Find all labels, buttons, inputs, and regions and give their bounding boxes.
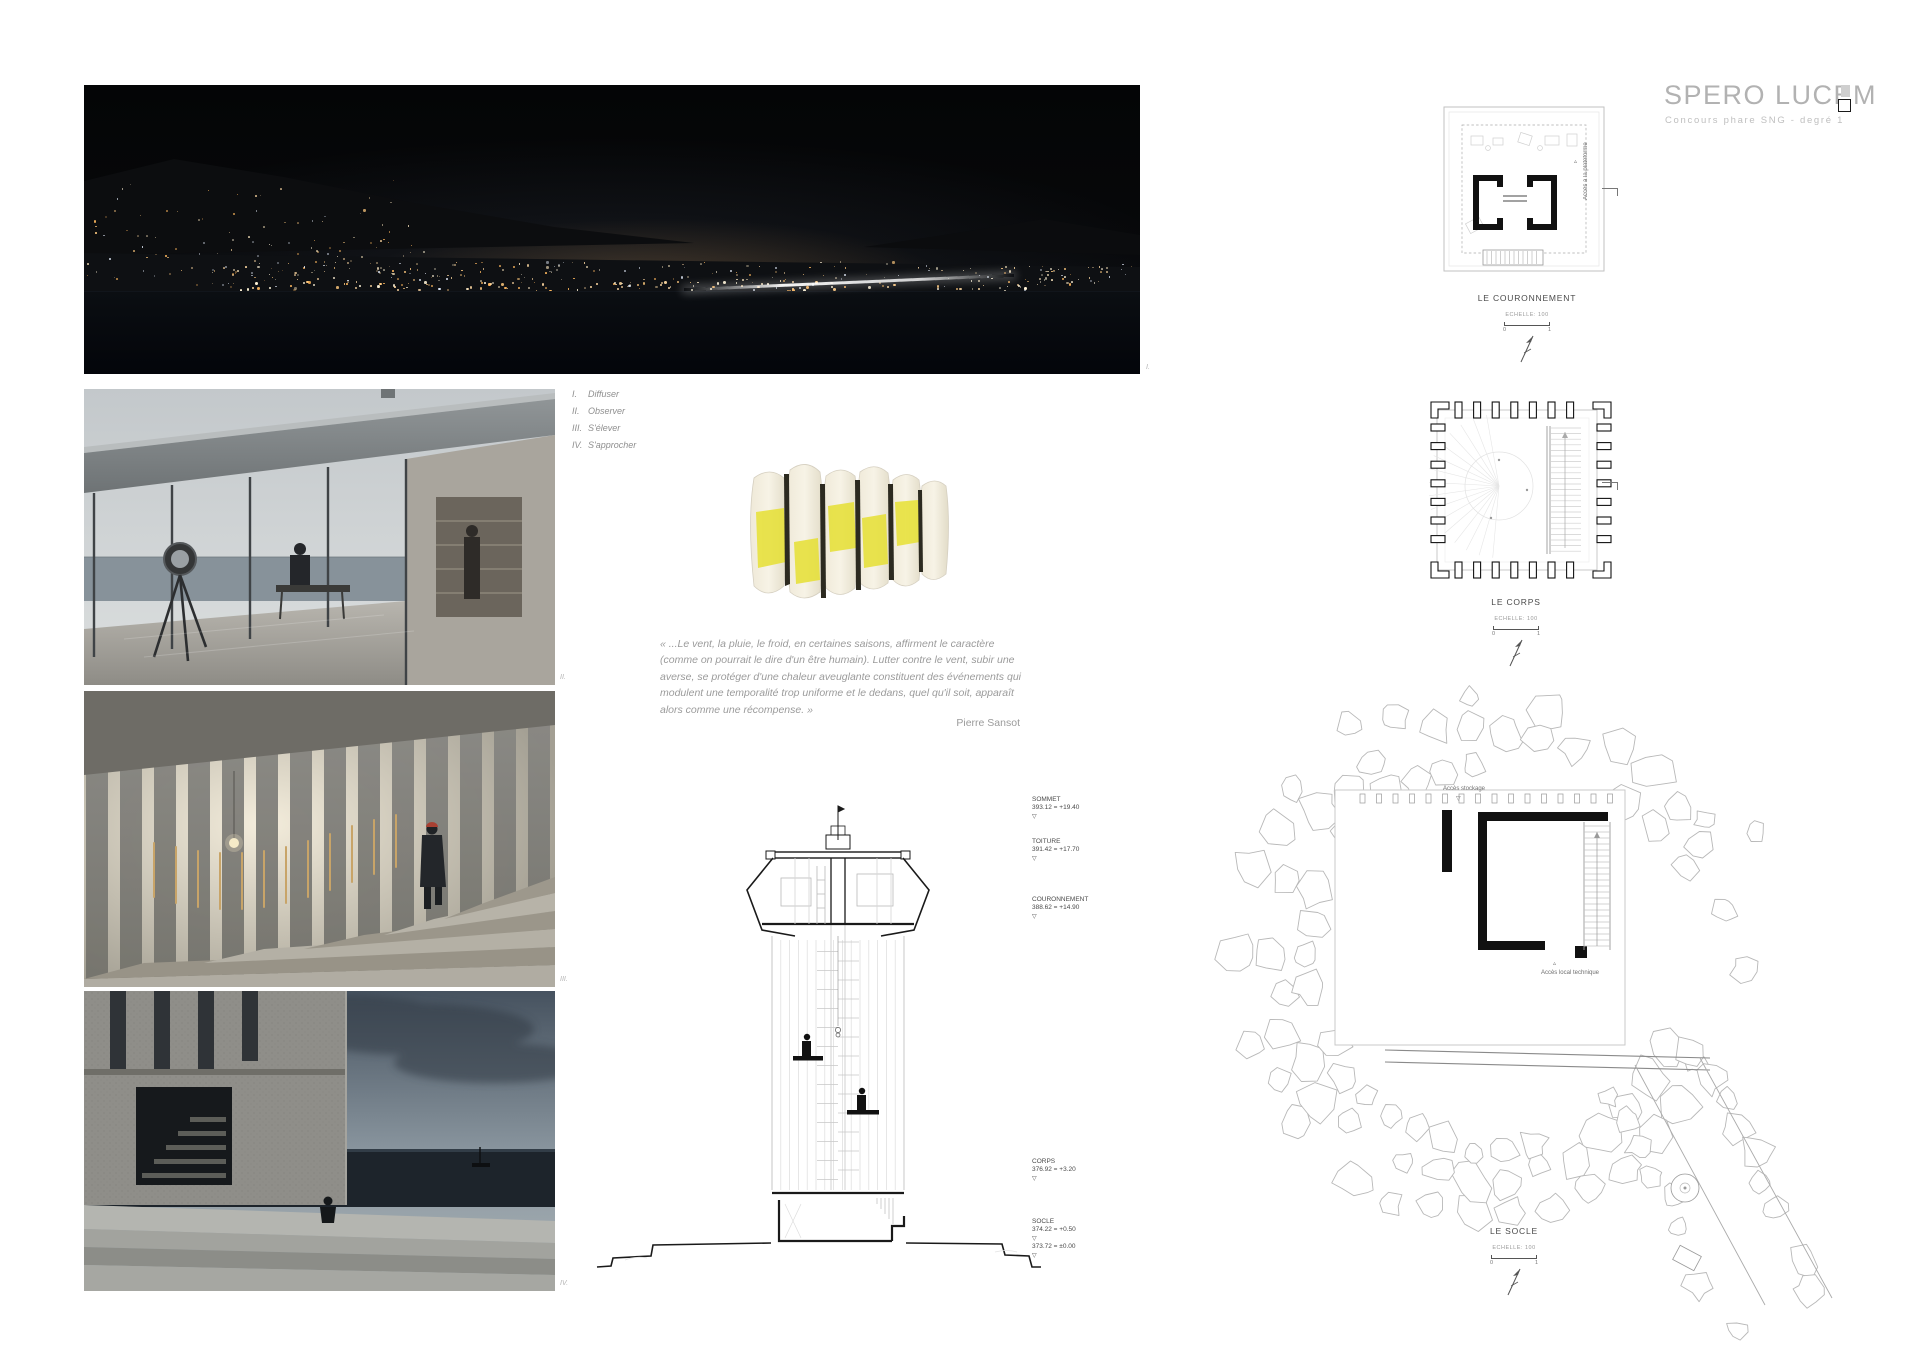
north-arrow-icon [1516, 330, 1538, 366]
scale-bar: 01 [1504, 321, 1550, 326]
level-label-sommet: SOMMET393.12 = +19.40 ▽ [1032, 796, 1152, 821]
level-marker-icon: ▽ [1032, 1252, 1152, 1260]
scale-bar: 01 [1491, 1254, 1537, 1259]
quote-author: Pierre Sansot [660, 717, 1020, 729]
access-triangle-icon: ▵ [1553, 960, 1556, 967]
concept-item: III.S'élever [572, 420, 636, 437]
level-label-corps: CORPS376.92 = +3.20 ▽ [1032, 1158, 1152, 1183]
plan-corps-drawing [1429, 398, 1613, 582]
figure-numeral-2: II. [560, 674, 566, 681]
concept-item: II.Observer [572, 403, 636, 420]
plan-title: LE CORPS [1426, 597, 1606, 607]
render-stair-hall [84, 691, 555, 987]
level-marker-icon: ▽ [1032, 913, 1152, 921]
plan-scale: ECHELLE: 100 [1426, 616, 1606, 622]
level-label-toiture: TOITURE391.42 = +17.70 ▽ [1032, 838, 1152, 863]
site-annotation-stockage: Accès stockage [1443, 786, 1485, 792]
level-marker-icon: ▽ [1032, 813, 1152, 821]
north-arrow-icon [1503, 1263, 1525, 1299]
plan-couronnement-annotation: Accès à la plateforme [1583, 140, 1589, 200]
concept-list: I.Diffuser II.Observer III.S'élever IV.S… [572, 386, 636, 454]
level-label-socle: SOCLE374.22 = +0.50 ▽ 373.72 = ±0.00 ▽ [1032, 1218, 1152, 1260]
level-marker-icon: ▽ [1032, 855, 1152, 863]
plan-couronnement-label: LE COURONNEMENT ECHELLE: 100 01 [1437, 293, 1617, 371]
level-marker-icon: ▽ [1032, 1235, 1152, 1243]
plan-title: LE COURONNEMENT [1437, 293, 1617, 303]
plan-socle-label: LE SOCLE ECHELLE: 100 01 [1424, 1226, 1604, 1304]
figure-numeral-1: I. [1146, 364, 1150, 371]
night-panorama-photo [84, 85, 1140, 374]
plan-scale: ECHELLE: 100 [1424, 1245, 1604, 1251]
level-label-couronnement: COURONNEMENT388.62 = +14.90 ▽ [1032, 896, 1152, 921]
board-subtitle: Concours phare SNG - degré 1 [1665, 115, 1844, 126]
scale-bar: 01 [1493, 625, 1539, 630]
lake-water [84, 291, 1140, 374]
section-cut-mark [1602, 188, 1618, 196]
concept-item: IV.S'approcher [572, 437, 636, 454]
plan-title: LE SOCLE [1424, 1226, 1604, 1236]
render-couronnement-interior [84, 389, 555, 685]
wax-model-photo [744, 450, 956, 620]
figure-numeral-4: IV. [560, 1280, 568, 1287]
figure-numeral-3: III. [560, 976, 568, 983]
site-annotation-technique: Accès local technique [1515, 970, 1625, 976]
section-drawing [595, 790, 1045, 1310]
level-marker-icon: ▽ [1032, 1175, 1152, 1183]
access-triangle-icon: ▽ [1456, 795, 1461, 802]
render-socle-sea [84, 991, 555, 1291]
logo-square-outline [1838, 99, 1851, 112]
logo-square-gray [1841, 85, 1850, 97]
access-triangle-icon: ▵ [1574, 158, 1577, 165]
section-cut-mark [1602, 482, 1618, 490]
presentation-board: I. [0, 0, 1920, 1358]
concept-item: I.Diffuser [572, 386, 636, 403]
plan-scale: ECHELLE: 100 [1437, 312, 1617, 318]
quote-text: « ...Le vent, la pluie, le froid, en cer… [660, 636, 1032, 719]
